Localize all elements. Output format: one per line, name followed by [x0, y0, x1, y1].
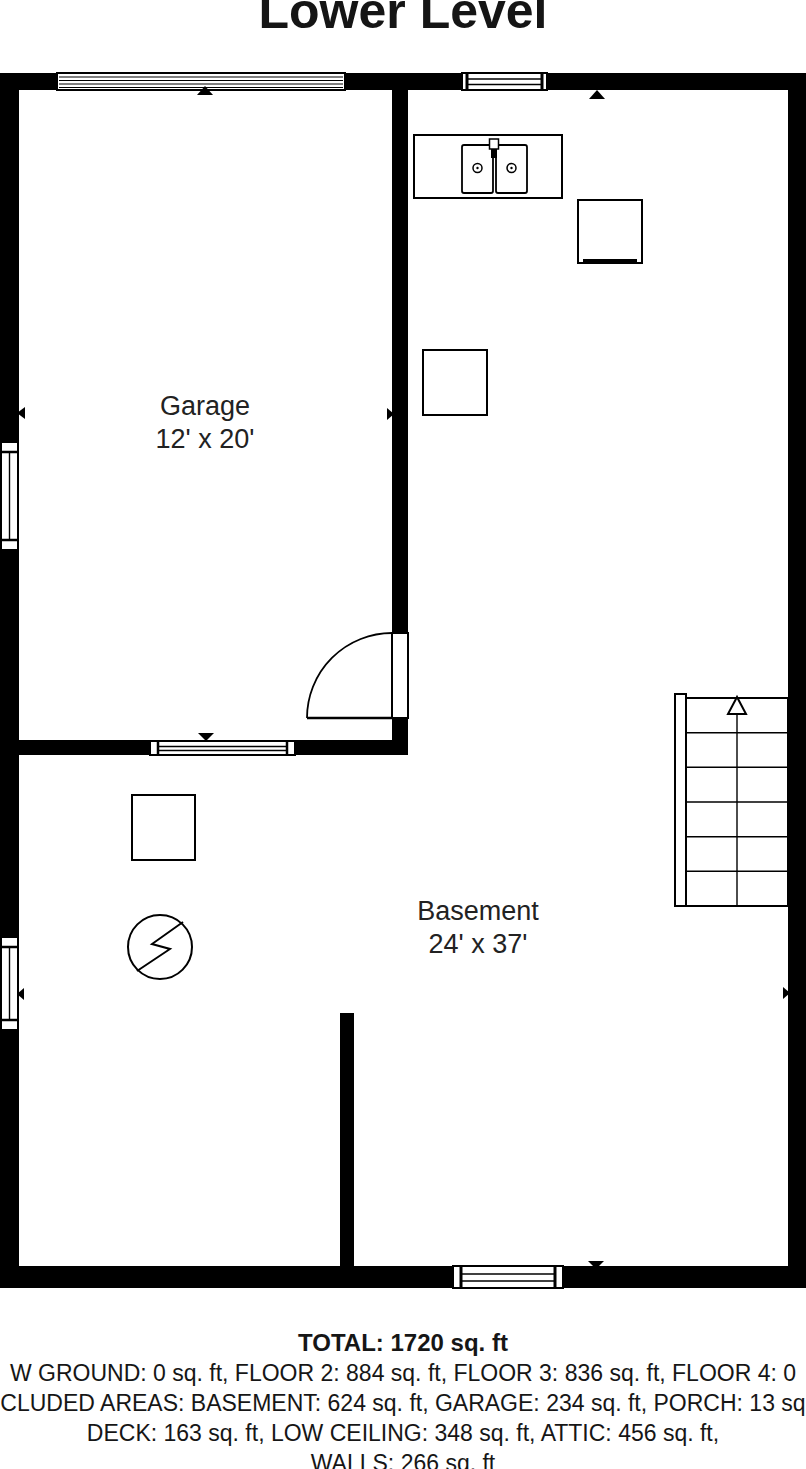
floor-plan-drawing [0, 0, 806, 1310]
garage-room-name: Garage [55, 390, 355, 423]
staircase [675, 694, 788, 906]
basement-room-dimensions: 24' x 37' [328, 928, 628, 961]
window-garage-bottom [150, 741, 295, 755]
double-sink [414, 135, 562, 198]
area-summary: TOTAL: 1720 sq. ft W GROUND: 0 sq. ft, F… [0, 1328, 806, 1469]
water-heater-icon [128, 915, 192, 979]
summary-deck-attic: DECK: 163 sq. ft, LOW CEILING: 348 sq. f… [0, 1418, 806, 1448]
interior-walls [19, 73, 408, 1273]
summary-total: TOTAL: 1720 sq. ft [0, 1328, 806, 1358]
summary-walls: WALLS: 266 sq. ft [0, 1448, 806, 1469]
storage-box-upper [423, 350, 487, 415]
garage-room-label: Garage 12' x 20' [55, 390, 355, 456]
floor-plan-page: Lower Level [0, 0, 806, 1469]
basement-room-name: Basement [328, 895, 628, 928]
summary-excluded-areas: CLUDED AREAS: BASEMENT: 624 sq. ft, GARA… [0, 1388, 806, 1418]
garage-door-symbol [57, 73, 345, 90]
marker-up-basement-icon [589, 90, 605, 99]
window-left-upper [1, 442, 18, 550]
window-top-basement [462, 73, 547, 90]
window-bottom-basement [453, 1266, 563, 1288]
summary-floors: W GROUND: 0 sq. ft, FLOOR 2: 884 sq. ft,… [0, 1358, 806, 1388]
entry-door [307, 633, 408, 718]
appliance-box [578, 200, 642, 263]
basement-room-label: Basement 24' x 37' [328, 895, 628, 961]
storage-box-basement [132, 795, 195, 860]
garage-room-dimensions: 12' x 20' [55, 423, 355, 456]
marker-down-garage-icon [198, 733, 214, 741]
window-left-lower [1, 937, 18, 1030]
